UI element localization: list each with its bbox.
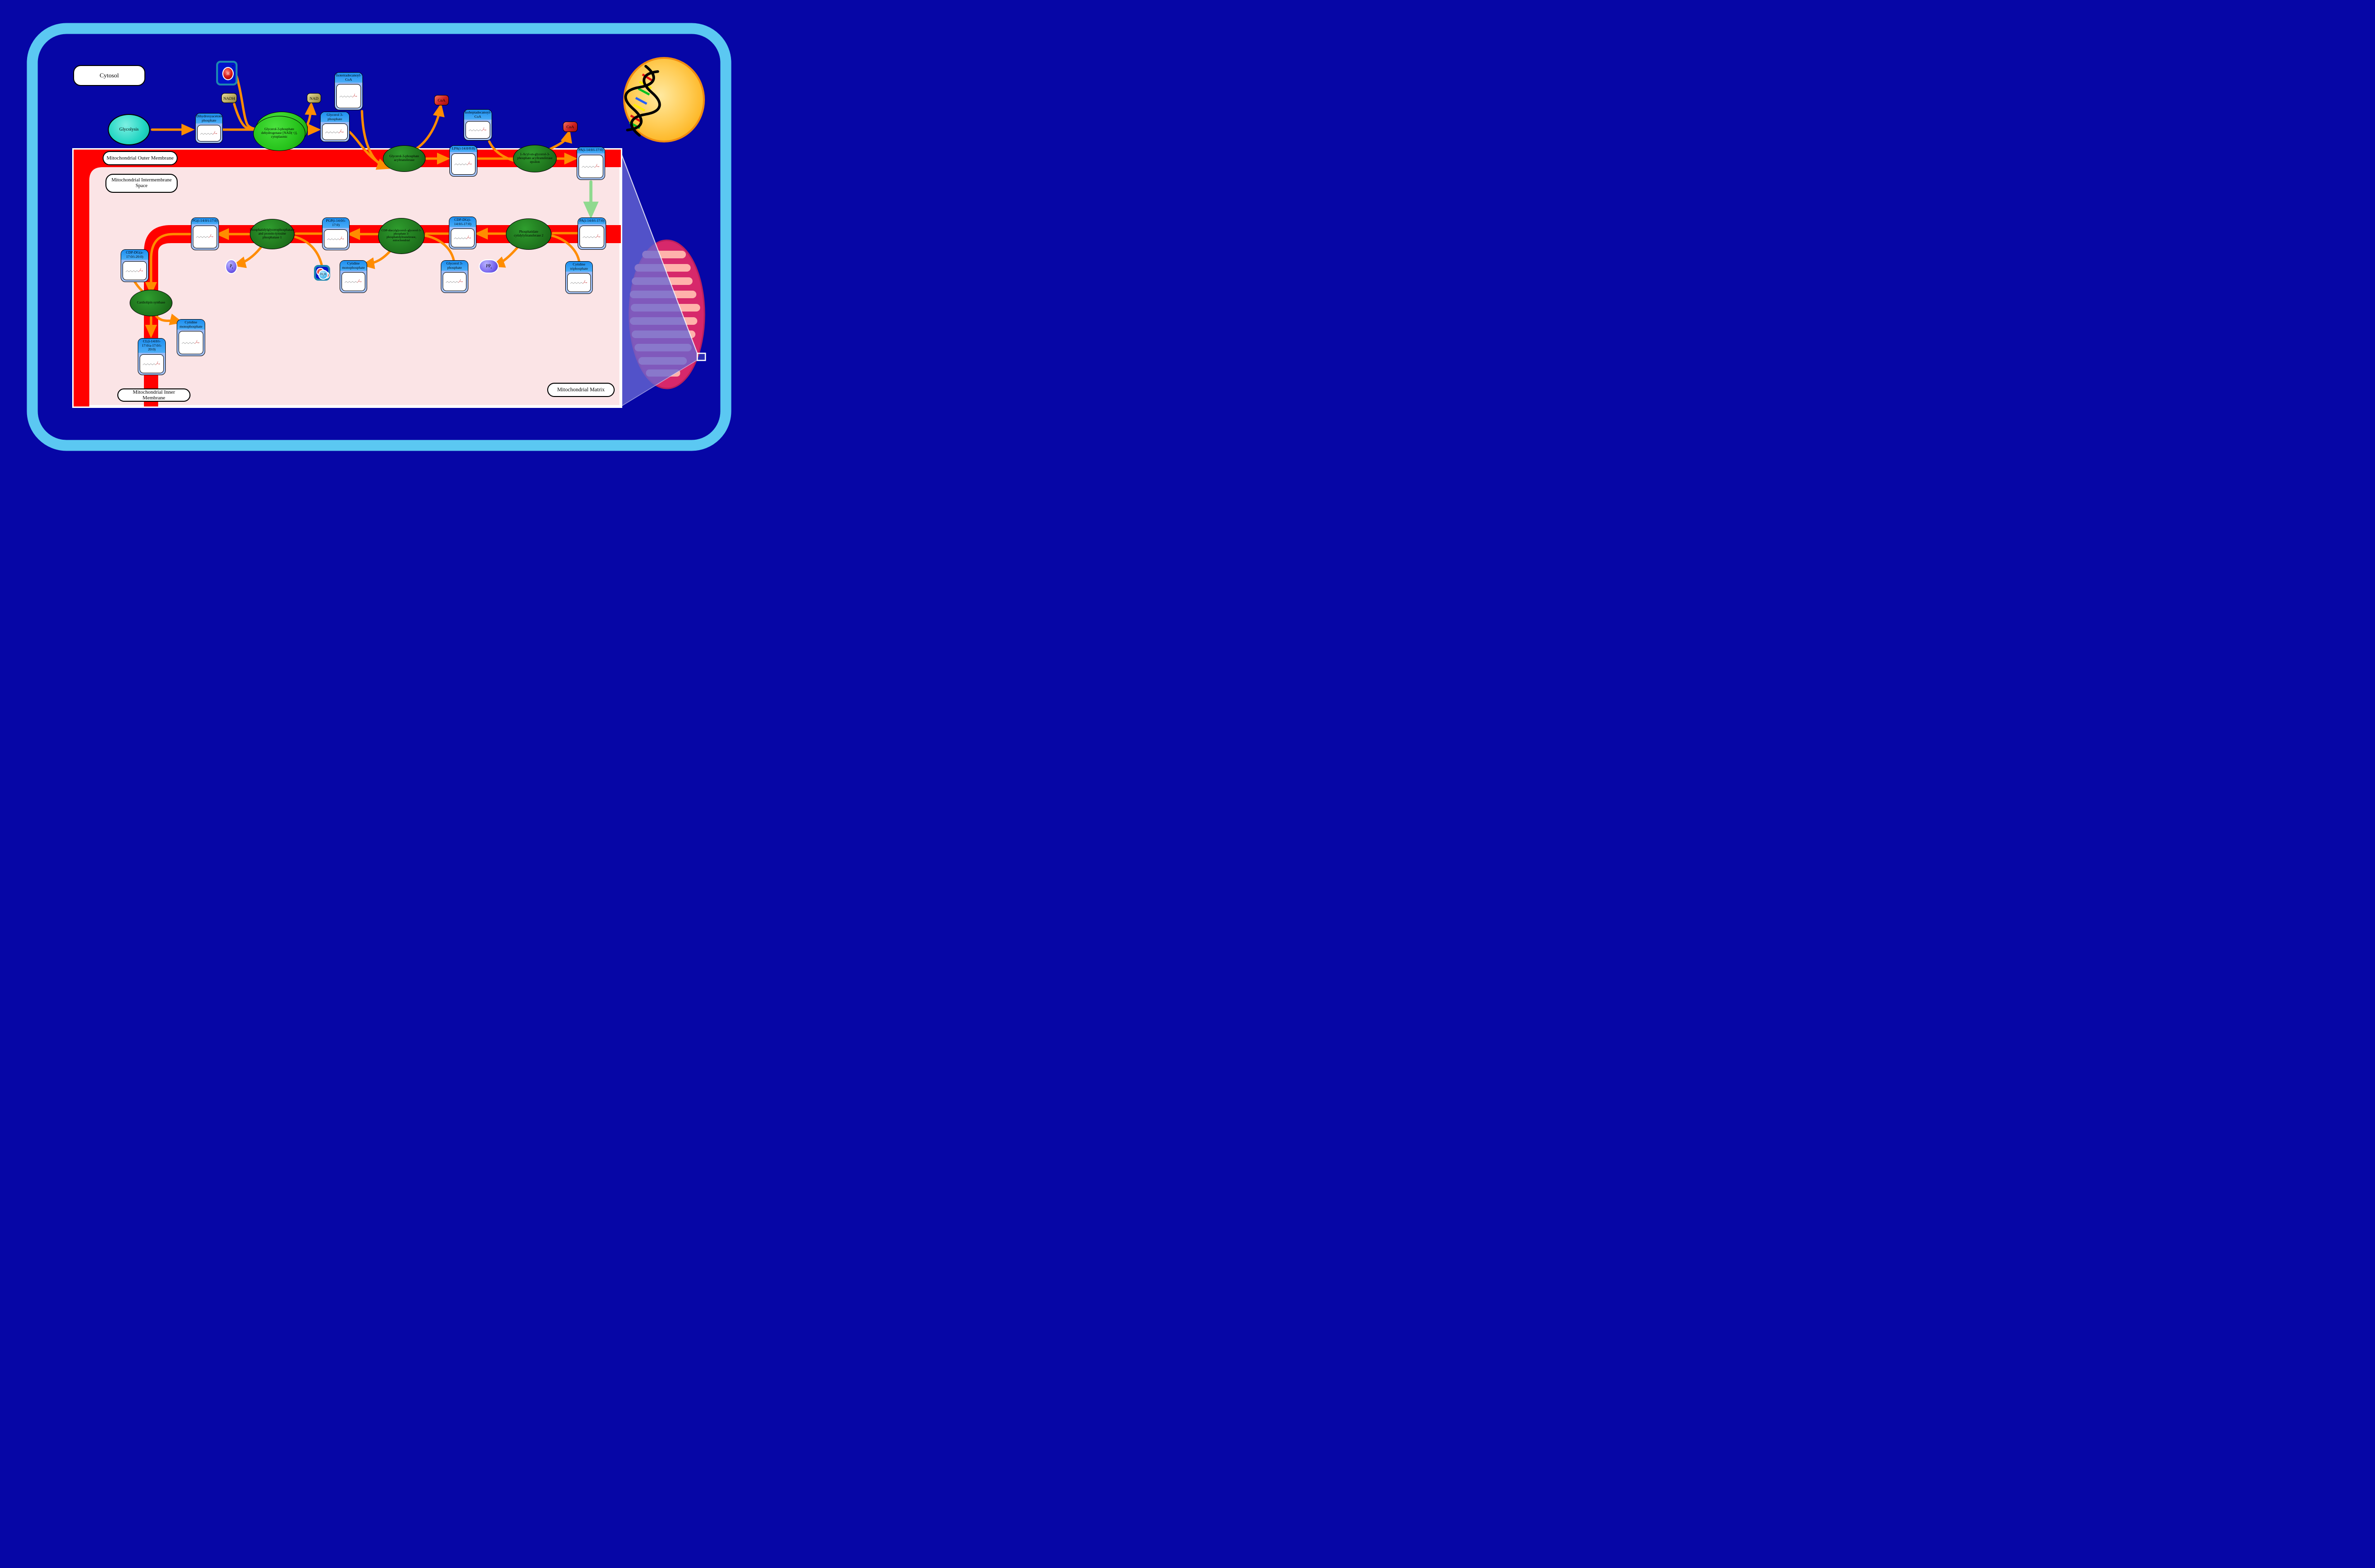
structure-thumbnail bbox=[322, 123, 348, 140]
metabolite-card-pgp[interactable]: PGP(i-14:0/i-17:0) bbox=[322, 217, 350, 250]
cofactor-label: NAD bbox=[310, 96, 319, 101]
water-node[interactable]: H2O bbox=[314, 265, 330, 281]
structure-thumbnail bbox=[465, 121, 490, 139]
enzyme-node-pgs1[interactable]: CDP-diacylglycerol--glycerol-3-phosphate… bbox=[378, 218, 425, 254]
metabolite-label: CDP-DG(a-17:0/i-20:0) bbox=[121, 250, 148, 260]
nad-pill[interactable]: NAD bbox=[307, 93, 321, 103]
structure-thumbnail bbox=[342, 272, 365, 291]
cofactor-label: NADH bbox=[223, 96, 235, 101]
label-inner-membrane: Mitochondrial Inner Membrane bbox=[117, 388, 190, 402]
metabolite-card-g3p-matrix[interactable]: Glycerol 3-phosphate bbox=[441, 260, 468, 293]
enzyme-node-cds2[interactable]: Phosphatidate cytidylyltransferase 2 bbox=[506, 218, 551, 250]
enzyme-node-cls[interactable]: Cardiolipin synthase bbox=[130, 290, 172, 316]
enzyme-label: Phosphatidate cytidylyltransferase 2 bbox=[509, 230, 549, 238]
structure-thumbnail bbox=[567, 273, 591, 292]
structure-thumbnail bbox=[193, 226, 217, 248]
metabolite-card-pa-inner[interactable]: PA(i-14:0/i-17:0) bbox=[578, 217, 606, 250]
structure-thumbnail bbox=[197, 125, 221, 142]
metabolite-label: CDP-DG(i-14:0/i-17:0) bbox=[449, 217, 476, 227]
enzyme-label: 1-Acyl-sn-glycerol-3-phosphate acyltrans… bbox=[516, 153, 554, 164]
pathway-diagram-canvas: Cytosol Mitochondrial Outer Membrane Mit… bbox=[0, 0, 769, 470]
structure-thumbnail bbox=[179, 331, 203, 354]
pyrophosphate-node[interactable]: PPi bbox=[479, 259, 499, 274]
enzyme-label: Cardiolipin synthase bbox=[137, 301, 165, 305]
cofactor-label: CoA bbox=[566, 124, 574, 129]
label-cytosol: Cytosol bbox=[73, 65, 145, 86]
enzyme-label: Glycerol-3-phosphate dehydrogenase [NAD(… bbox=[256, 128, 303, 139]
metabolite-label: Glycerol 3-phosphate bbox=[441, 261, 468, 271]
metabolite-label: PA(i-14:0/i-17:0) bbox=[577, 147, 605, 153]
arrow-to-coa-1 bbox=[413, 108, 440, 151]
zoom-source-square bbox=[697, 353, 705, 360]
structure-thumbnail bbox=[140, 354, 164, 373]
proton-node[interactable]: H + bbox=[216, 61, 237, 85]
enzyme-node-ptpmt1[interactable]: Phosphatidylglycerophosphatase and prote… bbox=[250, 219, 294, 249]
structure-thumbnail bbox=[443, 272, 466, 291]
metabolite-label: CL(i-14:0/i-17:0/a-17:0/i-20:0) bbox=[138, 339, 165, 353]
metabolite-card-pa-outer[interactable]: PA(i-14:0/i-17:0) bbox=[577, 147, 605, 180]
label-outer-membrane: Mitochondrial Outer Membrane bbox=[103, 151, 178, 165]
label-matrix: Mitochondrial Matrix bbox=[547, 383, 615, 397]
enzyme-label: Phosphatidylglycerophosphatase and prote… bbox=[250, 228, 294, 239]
structure-thumbnail bbox=[451, 153, 475, 175]
metabolite-card-iso14-coa[interactable]: Isotetradecanoyl-CoA bbox=[334, 72, 363, 110]
proton-symbol: H bbox=[227, 71, 230, 76]
metabolite-label: Cytidine monophosphate bbox=[340, 261, 367, 271]
metabolite-label: Isoheptadecanoyl-CoA bbox=[464, 110, 492, 120]
metabolite-card-lpa[interactable]: LPA(i-14:0/0:0) bbox=[449, 145, 477, 177]
phosphate-node[interactable]: Pi bbox=[225, 259, 237, 274]
metabolite-card-cmp-left[interactable]: Cytidine monophosphate bbox=[177, 319, 205, 356]
proton-charge: + bbox=[232, 64, 234, 68]
structure-thumbnail bbox=[123, 261, 147, 280]
metabolite-card-cmp-mid[interactable]: Cytidine monophosphate bbox=[340, 260, 367, 293]
water-formula: H2O bbox=[321, 273, 326, 276]
metabolite-label: LPA(i-14:0/0:0) bbox=[450, 146, 477, 152]
enzyme-label: Glycerol-3-phosphate acyltransferase bbox=[386, 155, 423, 162]
metabolite-card-pg[interactable]: PG(i-14:0/i-17:0) bbox=[191, 217, 219, 250]
enzyme-node-gpd[interactable]: Glycerol-3-phosphate dehydrogenase [NAD(… bbox=[253, 116, 305, 151]
metabolite-card-cdp-dg[interactable]: CDP-DG(i-14:0/i-17:0) bbox=[449, 217, 476, 249]
metabolite-card-cdp-dg-a[interactable]: CDP-DG(a-17:0/i-20:0) bbox=[121, 249, 149, 282]
structure-thumbnail bbox=[579, 226, 604, 248]
coa-pill-2[interactable]: CoA bbox=[563, 122, 578, 132]
metabolite-label: PA(i-14:0/i-17:0) bbox=[578, 218, 606, 224]
structure-thumbnail bbox=[324, 229, 348, 248]
metabolite-card-cl[interactable]: CL(i-14:0/i-17:0/a-17:0/i-20:0) bbox=[138, 338, 166, 375]
metabolite-label: Cytidine triphosphate bbox=[566, 262, 592, 272]
coa-pill-1[interactable]: CoA bbox=[434, 95, 449, 105]
metabolite-card-iso17-coa[interactable]: Isoheptadecanoyl-CoA bbox=[464, 109, 492, 141]
enzyme-node-gpat[interactable]: Glycerol-3-phosphate acyltransferase bbox=[383, 145, 426, 172]
nucleus-icon bbox=[616, 58, 704, 142]
nadh-pill[interactable]: NADH bbox=[221, 93, 237, 103]
glycolysis-node[interactable]: Glycolysis bbox=[108, 114, 150, 145]
metabolite-card-dhap[interactable]: Dihydroxyacetone phosphate bbox=[195, 113, 223, 143]
arrow-to-coa-2 bbox=[547, 134, 569, 151]
metabolite-label: Isotetradecanoyl-CoA bbox=[335, 73, 362, 83]
enzyme-node-agpat-e[interactable]: 1-Acyl-sn-glycerol-3-phosphate acyltrans… bbox=[513, 145, 557, 172]
cofactor-label: CoA bbox=[437, 98, 445, 103]
metabolite-label: Dihydroxyacetone phosphate bbox=[196, 113, 222, 123]
metabolite-label: Glycerol 3-phosphate bbox=[321, 112, 349, 122]
metabolite-label: PG(i-14:0/i-17:0) bbox=[191, 218, 218, 224]
structure-thumbnail bbox=[579, 155, 603, 178]
enzyme-label: CDP-diacylglycerol--glycerol-3-phosphate… bbox=[381, 229, 422, 243]
metabolite-label: Cytidine monophosphate bbox=[177, 320, 205, 330]
structure-thumbnail bbox=[451, 228, 475, 247]
metabolite-card-ctp[interactable]: Cytidine triphosphate bbox=[565, 261, 593, 294]
metabolite-card-g3p-cytosol[interactable]: Glycerol 3-phosphate bbox=[320, 112, 350, 142]
metabolite-label: PGP(i-14:0/i-17:0) bbox=[323, 218, 349, 228]
label-intermembrane-space: Mitochondrial Intermembrane Space bbox=[105, 174, 178, 193]
structure-thumbnail bbox=[336, 84, 361, 108]
